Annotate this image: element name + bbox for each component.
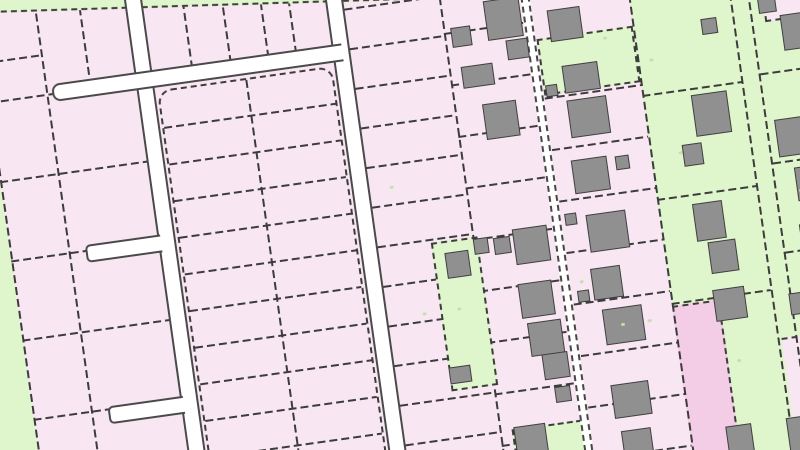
building-footprint xyxy=(691,90,732,137)
building-footprint xyxy=(757,0,777,14)
map-symbol-dot xyxy=(649,58,653,62)
road-junction-patch xyxy=(331,45,345,61)
building-footprint xyxy=(590,265,624,301)
building-footprint xyxy=(517,280,556,319)
building-footprint xyxy=(610,380,652,419)
road-junction-patch xyxy=(136,72,152,88)
map-symbol-dot xyxy=(737,359,741,363)
building-footprint xyxy=(779,11,800,51)
building-footprint xyxy=(512,225,552,266)
building-footprint xyxy=(554,385,572,403)
building-footprint xyxy=(788,291,800,315)
building-footprint xyxy=(621,427,655,450)
building-footprint xyxy=(541,351,570,380)
map-viewport xyxy=(0,0,800,450)
building-footprint xyxy=(493,236,512,255)
building-footprint xyxy=(707,238,739,274)
building-footprint xyxy=(473,237,490,255)
parcel-boundary-line xyxy=(785,230,800,253)
building-footprint xyxy=(547,6,584,42)
building-footprint xyxy=(794,164,800,201)
building-footprint xyxy=(712,286,748,322)
parcel-boundary-line xyxy=(657,185,756,201)
building-footprint xyxy=(577,289,591,303)
building-footprint xyxy=(571,156,611,195)
building-footprint xyxy=(444,250,471,279)
building-footprint xyxy=(700,17,718,35)
building-footprint xyxy=(682,142,705,167)
building-footprint xyxy=(585,210,630,253)
building-footprint xyxy=(513,423,549,450)
building-footprint xyxy=(615,155,631,171)
building-footprint xyxy=(564,212,578,226)
building-footprint xyxy=(561,61,601,94)
building-footprint xyxy=(566,95,611,138)
building-footprint xyxy=(448,365,472,385)
building-footprint xyxy=(545,84,559,98)
building-footprint xyxy=(505,37,530,60)
building-footprint xyxy=(692,200,727,242)
building-footprint xyxy=(450,25,473,48)
building-footprint xyxy=(461,63,496,89)
building-footprint xyxy=(786,413,800,450)
parcel-boundary-line xyxy=(760,52,800,75)
building-footprint xyxy=(725,423,756,450)
building-footprint xyxy=(774,114,800,157)
map-canvas xyxy=(0,0,800,450)
building-footprint xyxy=(482,100,521,140)
building-footprint xyxy=(483,0,524,41)
